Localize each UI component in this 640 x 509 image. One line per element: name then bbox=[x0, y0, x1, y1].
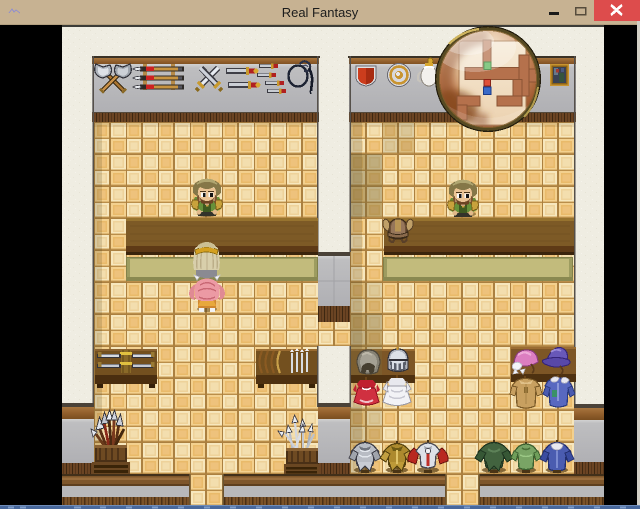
svg-text:Real Fantasy: Real Fantasy bbox=[282, 5, 359, 20]
